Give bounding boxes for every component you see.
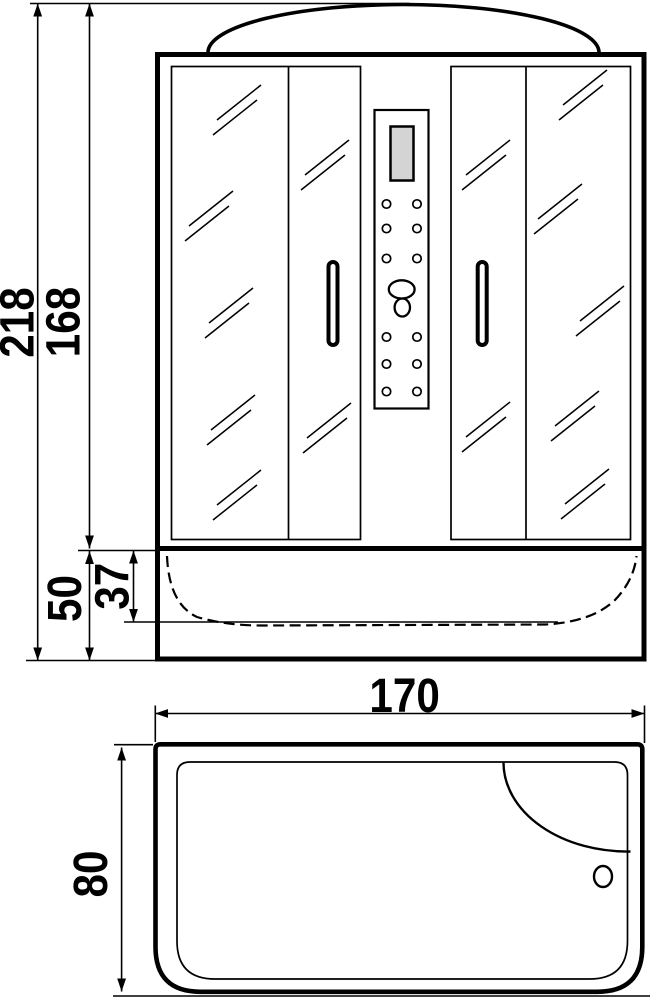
svg-text:170: 170	[369, 668, 439, 722]
svg-text:50: 50	[38, 575, 92, 622]
svg-text:80: 80	[63, 851, 117, 898]
svg-text:168: 168	[36, 287, 90, 357]
svg-text:37: 37	[85, 563, 139, 610]
